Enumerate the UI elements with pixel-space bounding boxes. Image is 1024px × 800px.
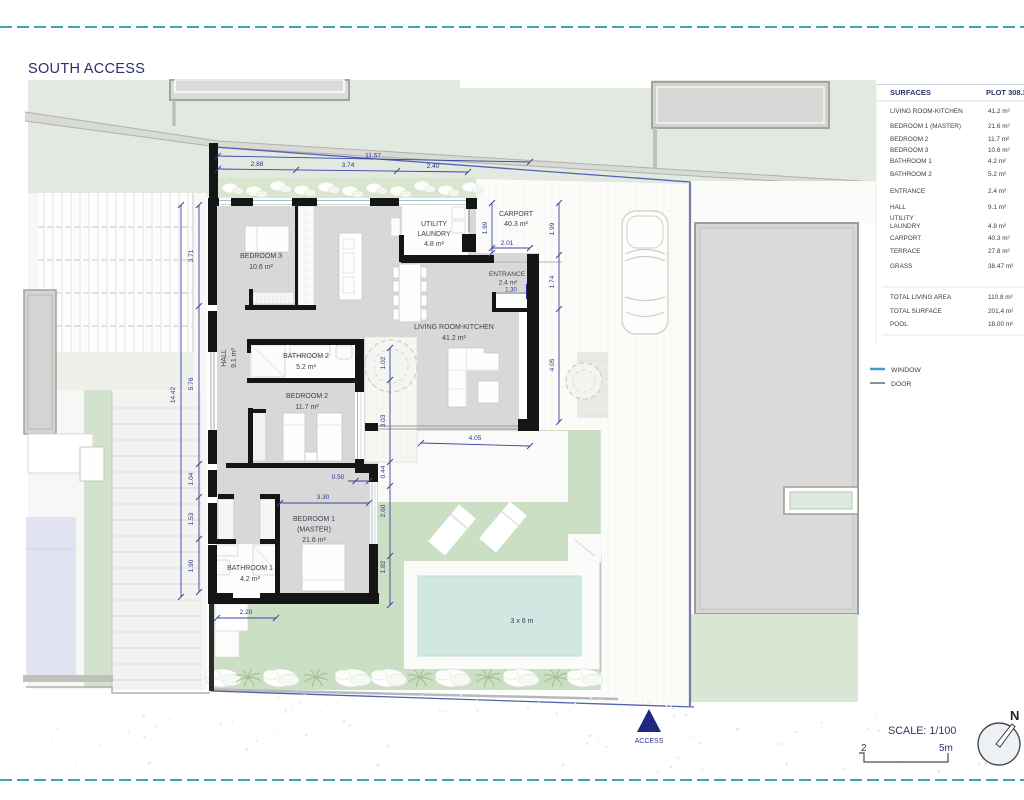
svg-text:1.02: 1.02	[380, 356, 387, 369]
svg-text:1.04: 1.04	[188, 472, 195, 485]
svg-text:BATHROOM 1: BATHROOM 1	[890, 158, 932, 165]
svg-text:3.03: 3.03	[380, 414, 387, 427]
svg-text:40.3 m²: 40.3 m²	[504, 221, 528, 228]
svg-text:5m: 5m	[939, 743, 953, 754]
svg-text:BATHROOM 2: BATHROOM 2	[890, 171, 932, 178]
svg-text:9.1 m²: 9.1 m²	[988, 204, 1006, 211]
svg-text:HALL: HALL	[221, 349, 228, 367]
svg-text:BEDROOM 3: BEDROOM 3	[890, 147, 929, 154]
svg-text:21.6 m²: 21.6 m²	[988, 123, 1010, 130]
svg-text:UTILITY: UTILITY	[421, 221, 447, 228]
svg-text:BEDROOM 3: BEDROOM 3	[240, 253, 282, 260]
svg-text:TOTAL SURFACE: TOTAL SURFACE	[890, 308, 942, 315]
svg-text:4.8 m²: 4.8 m²	[424, 241, 445, 248]
svg-text:BEDROOM 2: BEDROOM 2	[890, 136, 929, 143]
svg-text:SCALE: 1/100: SCALE: 1/100	[888, 725, 956, 737]
svg-text:(MASTER): (MASTER)	[297, 527, 331, 534]
svg-text:5.2 m²: 5.2 m²	[988, 171, 1006, 178]
svg-text:BATHROOM 1: BATHROOM 1	[227, 565, 273, 572]
svg-text:2.60: 2.60	[380, 504, 387, 517]
svg-text:LAUNDRY: LAUNDRY	[417, 231, 451, 238]
svg-text:CARPORT: CARPORT	[499, 211, 534, 218]
svg-text:ENTRANCE: ENTRANCE	[890, 188, 925, 195]
svg-text:2.4 m²: 2.4 m²	[988, 188, 1006, 195]
svg-text:DOOR: DOOR	[891, 381, 911, 388]
svg-text:3.30: 3.30	[317, 494, 330, 501]
svg-text:1.53: 1.53	[188, 512, 195, 525]
svg-text:38.47 m²: 38.47 m²	[988, 263, 1013, 270]
svg-text:PLOT 308.3: PLOT 308.3	[986, 88, 1024, 97]
svg-text:TOTAL LIVING AREA: TOTAL LIVING AREA	[890, 294, 952, 301]
svg-text:41.2 m²: 41.2 m²	[988, 108, 1010, 115]
svg-text:110.8 m²: 110.8 m²	[988, 294, 1013, 301]
svg-text:2.20: 2.20	[240, 609, 253, 616]
svg-text:10.6 m²: 10.6 m²	[988, 147, 1010, 154]
svg-text:LIVING ROOM-KITCHEN: LIVING ROOM-KITCHEN	[414, 324, 494, 331]
svg-text:10.6 m²: 10.6 m²	[249, 264, 273, 271]
svg-text:9.1 m²: 9.1 m²	[231, 347, 238, 368]
svg-text:2: 2	[861, 743, 867, 754]
svg-text:201,4 m²: 201,4 m²	[988, 308, 1013, 315]
svg-text:ENTRANCE: ENTRANCE	[489, 271, 526, 278]
svg-text:4.05: 4.05	[549, 358, 556, 371]
svg-text:2.4 m²: 2.4 m²	[499, 280, 518, 287]
svg-text:BEDROOM 2: BEDROOM 2	[286, 393, 328, 400]
svg-text:1.99: 1.99	[549, 222, 556, 235]
svg-text:4.8 m²: 4.8 m²	[988, 223, 1006, 230]
svg-text:1.90: 1.90	[188, 559, 195, 572]
svg-text:4.2 m²: 4.2 m²	[988, 158, 1006, 165]
svg-text:18.00 m²: 18.00 m²	[988, 321, 1013, 328]
svg-text:BEDROOM 1 (MASTER): BEDROOM 1 (MASTER)	[890, 123, 961, 130]
svg-text:0.50: 0.50	[332, 474, 345, 481]
svg-text:5.76: 5.76	[188, 377, 195, 390]
svg-text:11.57: 11.57	[365, 152, 381, 159]
svg-text:4.2 m²: 4.2 m²	[240, 576, 261, 583]
svg-text:1.30: 1.30	[505, 288, 517, 294]
svg-text:0.44: 0.44	[380, 465, 387, 478]
svg-text:4.05: 4.05	[469, 435, 482, 442]
svg-text:11.7 m²: 11.7 m²	[295, 404, 319, 411]
svg-text:3.71: 3.71	[188, 249, 195, 262]
svg-text:27.8 m²: 27.8 m²	[988, 248, 1010, 255]
svg-text:1.82: 1.82	[380, 560, 387, 573]
svg-text:CARPORT: CARPORT	[890, 235, 921, 242]
svg-text:ACCESS: ACCESS	[635, 738, 664, 745]
svg-text:TERRACE: TERRACE	[890, 248, 921, 255]
svg-text:BEDROOM 1: BEDROOM 1	[293, 516, 335, 523]
svg-text:2.40: 2.40	[427, 163, 440, 170]
svg-text:POOL: POOL	[890, 321, 908, 328]
svg-text:SURFACES: SURFACES	[890, 88, 931, 97]
svg-text:21.6 m²: 21.6 m²	[302, 537, 326, 544]
svg-text:BATHROOM 2: BATHROOM 2	[283, 353, 329, 360]
svg-text:SOUTH ACCESS: SOUTH ACCESS	[28, 61, 145, 77]
svg-text:2.01: 2.01	[501, 240, 514, 247]
svg-text:11.7 m²: 11.7 m²	[988, 136, 1009, 143]
svg-text:LAUNDRY: LAUNDRY	[890, 223, 921, 230]
svg-text:1.74: 1.74	[549, 275, 556, 288]
svg-text:GRASS: GRASS	[890, 263, 912, 270]
svg-text:3.74: 3.74	[342, 162, 355, 169]
svg-text:2.88: 2.88	[251, 161, 264, 168]
svg-text:14.42: 14.42	[170, 386, 177, 403]
svg-text:41.2 m²: 41.2 m²	[442, 335, 466, 342]
svg-text:5.2 m²: 5.2 m²	[296, 364, 317, 371]
svg-text:N: N	[1010, 708, 1019, 723]
svg-text:3 x 6 m: 3 x 6 m	[511, 618, 534, 625]
svg-text:40.3 m²: 40.3 m²	[988, 235, 1010, 242]
svg-text:1.99: 1.99	[482, 221, 489, 234]
svg-text:UTILITY: UTILITY	[890, 215, 915, 222]
svg-text:WINDOW: WINDOW	[891, 367, 921, 374]
svg-text:HALL: HALL	[890, 204, 906, 211]
svg-text:LIVING ROOM-KITCHEN: LIVING ROOM-KITCHEN	[890, 108, 963, 115]
